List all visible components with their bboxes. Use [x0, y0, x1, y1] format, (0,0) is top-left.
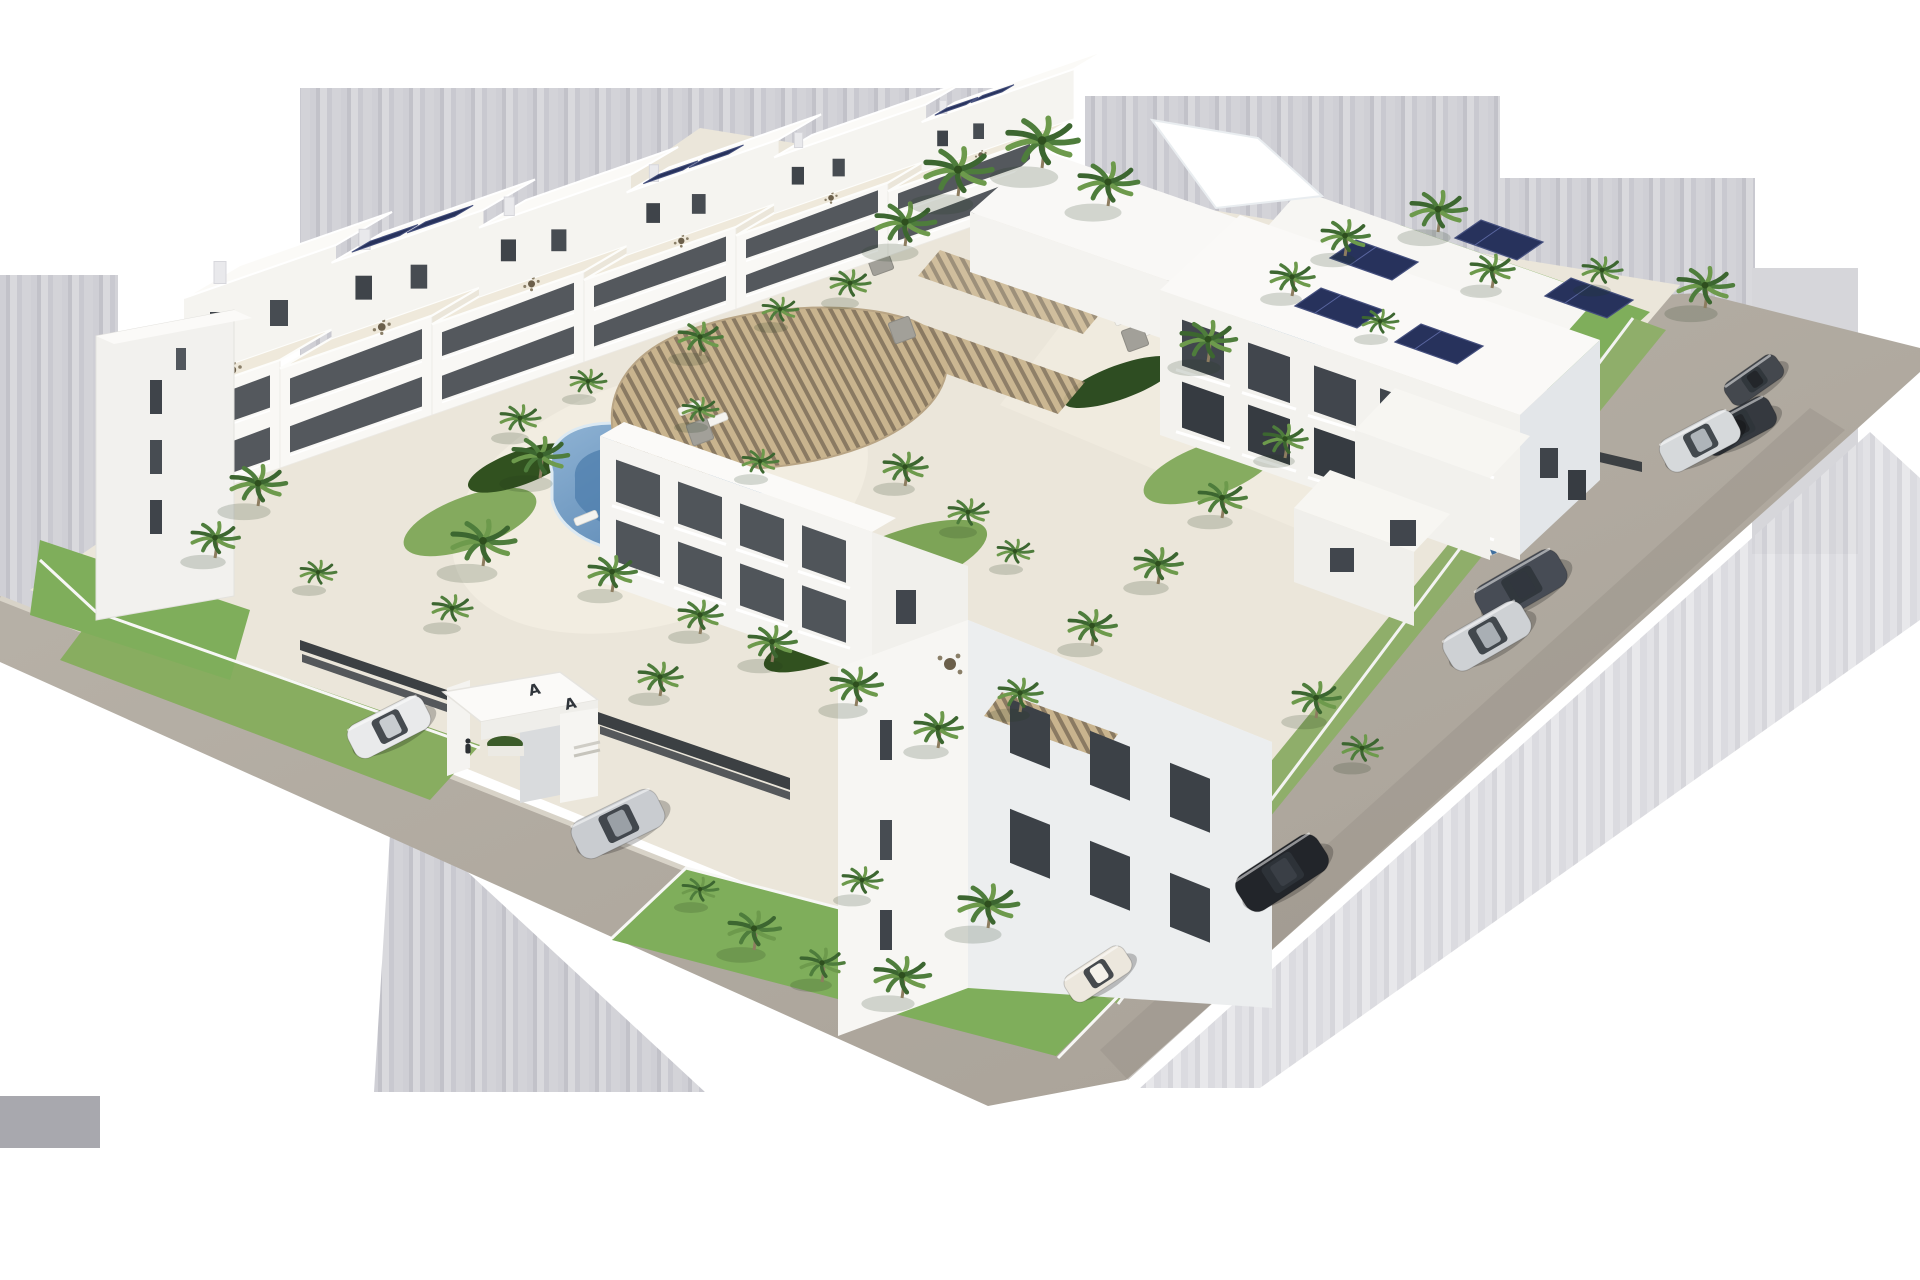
- palm-crown-center: [1342, 233, 1348, 239]
- gable-building-west: [96, 310, 252, 620]
- palm-shadow: [1397, 229, 1450, 246]
- palm-crown-center: [1600, 268, 1605, 273]
- terrace-table: [528, 280, 535, 287]
- palm-crown-center: [697, 334, 702, 339]
- palm-shadow: [754, 322, 788, 333]
- chimney: [504, 197, 514, 215]
- roof-chair: [958, 670, 963, 675]
- terrace-chair: [835, 195, 837, 197]
- roof-dining-set: [944, 658, 956, 670]
- palm-shadow: [674, 422, 708, 433]
- palm-shadow: [862, 244, 919, 262]
- palm-shadow: [873, 483, 915, 496]
- palm-crown-center: [853, 681, 859, 687]
- palm-crown-center: [657, 674, 662, 679]
- terrace-chair: [530, 288, 533, 291]
- palm-crown-center: [966, 510, 971, 515]
- window: [551, 229, 566, 251]
- palm-shadow: [499, 475, 552, 492]
- palm-shadow: [577, 589, 623, 603]
- window: [973, 123, 984, 139]
- palm-shadow: [861, 995, 914, 1012]
- terrace-chair: [830, 201, 832, 203]
- palm-crown-center: [518, 416, 523, 421]
- window: [896, 590, 916, 624]
- palm-crown-center: [1038, 136, 1047, 145]
- palm-shadow: [1253, 455, 1295, 468]
- window: [150, 440, 162, 474]
- palm-shadow: [628, 693, 670, 706]
- terrace-chair: [523, 285, 526, 288]
- palm-crown-center: [1089, 623, 1095, 629]
- palm-crown-center: [316, 570, 320, 574]
- gray-rect-bottom-left: [0, 1096, 100, 1148]
- roof-chair: [956, 654, 961, 659]
- palm-shadow: [217, 503, 270, 520]
- person-body: [465, 744, 470, 754]
- palm-shadow: [790, 979, 832, 992]
- palm-shadow: [562, 394, 596, 405]
- terrace-chair: [674, 242, 677, 245]
- palm-shadow: [1460, 285, 1502, 298]
- window: [270, 300, 288, 326]
- palm-crown-center: [899, 972, 906, 979]
- palm-shadow: [1310, 253, 1356, 267]
- palm-crown-center: [450, 606, 455, 611]
- window: [833, 159, 845, 177]
- palm-crown-center: [1435, 206, 1442, 213]
- palm-shadow: [909, 194, 974, 214]
- palm-shadow: [1260, 293, 1302, 306]
- palm-crown-center: [698, 887, 702, 891]
- terrace-chair: [824, 199, 826, 201]
- window: [692, 194, 706, 214]
- palm-shadow: [1123, 581, 1169, 595]
- window: [880, 910, 892, 950]
- window: [501, 239, 516, 261]
- palm-crown-center: [901, 218, 908, 225]
- palm-crown-center: [758, 459, 762, 463]
- palm-shadow: [988, 709, 1030, 722]
- palm-crown-center: [698, 407, 702, 411]
- palm-crown-center: [954, 166, 962, 174]
- terrace-chair: [373, 328, 376, 331]
- palm-shadow: [423, 622, 461, 634]
- palm-shadow: [668, 353, 710, 366]
- palm-shadow: [437, 564, 498, 583]
- palm-shadow: [737, 659, 783, 673]
- palm-shadow: [716, 947, 765, 963]
- palm-crown-center: [1489, 266, 1494, 271]
- window: [150, 500, 162, 534]
- palm-shadow: [1187, 515, 1233, 529]
- palm-crown-center: [1378, 319, 1382, 323]
- window: [1390, 520, 1416, 546]
- palm-crown-center: [984, 900, 991, 907]
- palm-crown-center: [1289, 274, 1294, 279]
- palm-crown-center: [860, 878, 865, 883]
- palm-shadow: [990, 166, 1058, 188]
- palm-shadow: [945, 926, 1002, 944]
- palm-shadow: [818, 703, 867, 719]
- palm-shadow: [1664, 305, 1717, 322]
- palm-shadow: [1333, 762, 1371, 774]
- palm-crown-center: [1155, 561, 1161, 567]
- palm-crown-center: [1219, 495, 1225, 501]
- palm-crown-center: [778, 307, 782, 311]
- palm-shadow: [1065, 204, 1122, 222]
- palm-shadow: [1167, 359, 1220, 376]
- palm-shadow: [668, 631, 710, 644]
- palm-crown-center: [1702, 282, 1709, 289]
- palm-shadow: [821, 297, 859, 309]
- scene-svg: A A: [0, 0, 1920, 1280]
- palm-shadow: [180, 555, 226, 569]
- terrace-chair: [686, 237, 689, 240]
- palm-shadow: [674, 902, 708, 913]
- palm-shadow: [1281, 715, 1327, 729]
- palm-shadow: [491, 432, 529, 444]
- palm-crown-center: [537, 452, 544, 459]
- render-canvas: A A: [0, 0, 1920, 1280]
- gable-wall: [96, 310, 234, 620]
- terrace-chair: [680, 245, 683, 248]
- window: [1540, 448, 1558, 478]
- chimney: [214, 262, 226, 284]
- palm-crown-center: [697, 612, 702, 617]
- palm-crown-center: [212, 535, 218, 541]
- palm-crown-center: [1360, 746, 1365, 751]
- terrace-chair: [387, 323, 390, 326]
- palm-crown-center: [1104, 178, 1111, 185]
- palm-shadow: [903, 745, 949, 759]
- palm-crown-center: [751, 925, 757, 931]
- palm-crown-center: [479, 537, 487, 545]
- window: [411, 265, 428, 289]
- window: [355, 276, 372, 300]
- palm-crown-center: [935, 725, 941, 731]
- palm-crown-center: [819, 960, 824, 965]
- window: [150, 380, 162, 414]
- terrace-table: [828, 195, 834, 201]
- palm-shadow: [989, 564, 1023, 575]
- palm-shadow: [833, 894, 871, 906]
- terrace-chair: [380, 332, 383, 335]
- terrace-chair: [537, 280, 540, 283]
- palm-crown-center: [1205, 336, 1212, 343]
- palm-crown-center: [1282, 436, 1287, 441]
- roof-chair: [938, 656, 943, 661]
- window: [880, 720, 892, 760]
- palm-shadow: [1354, 334, 1388, 345]
- window: [937, 131, 948, 147]
- terrace-chair: [975, 156, 977, 158]
- terrace-table: [678, 238, 684, 244]
- palm-crown-center: [902, 464, 907, 469]
- person-figure: [465, 738, 470, 753]
- palm-crown-center: [1013, 549, 1017, 553]
- palm-shadow: [939, 526, 977, 538]
- window: [880, 820, 892, 860]
- window: [646, 203, 660, 223]
- terrace-chair: [238, 365, 242, 369]
- palm-crown-center: [1017, 690, 1022, 695]
- window: [1568, 470, 1586, 500]
- chimney: [794, 133, 802, 148]
- palm-crown-center: [586, 379, 590, 383]
- palm-shadow: [292, 585, 326, 596]
- palm-shadow: [1573, 284, 1611, 296]
- gate-planter-box: [488, 746, 524, 756]
- palm-shadow: [1057, 643, 1103, 657]
- window: [1330, 548, 1354, 572]
- window: [792, 167, 804, 185]
- person-head: [465, 738, 470, 743]
- palm-crown-center: [848, 281, 853, 286]
- palm-shadow: [734, 474, 768, 485]
- palm-crown-center: [769, 639, 775, 645]
- palm-crown-center: [609, 569, 615, 575]
- palm-crown-center: [1313, 695, 1319, 701]
- palm-crown-center: [255, 480, 262, 487]
- window: [176, 348, 186, 370]
- terrace-table: [378, 323, 386, 331]
